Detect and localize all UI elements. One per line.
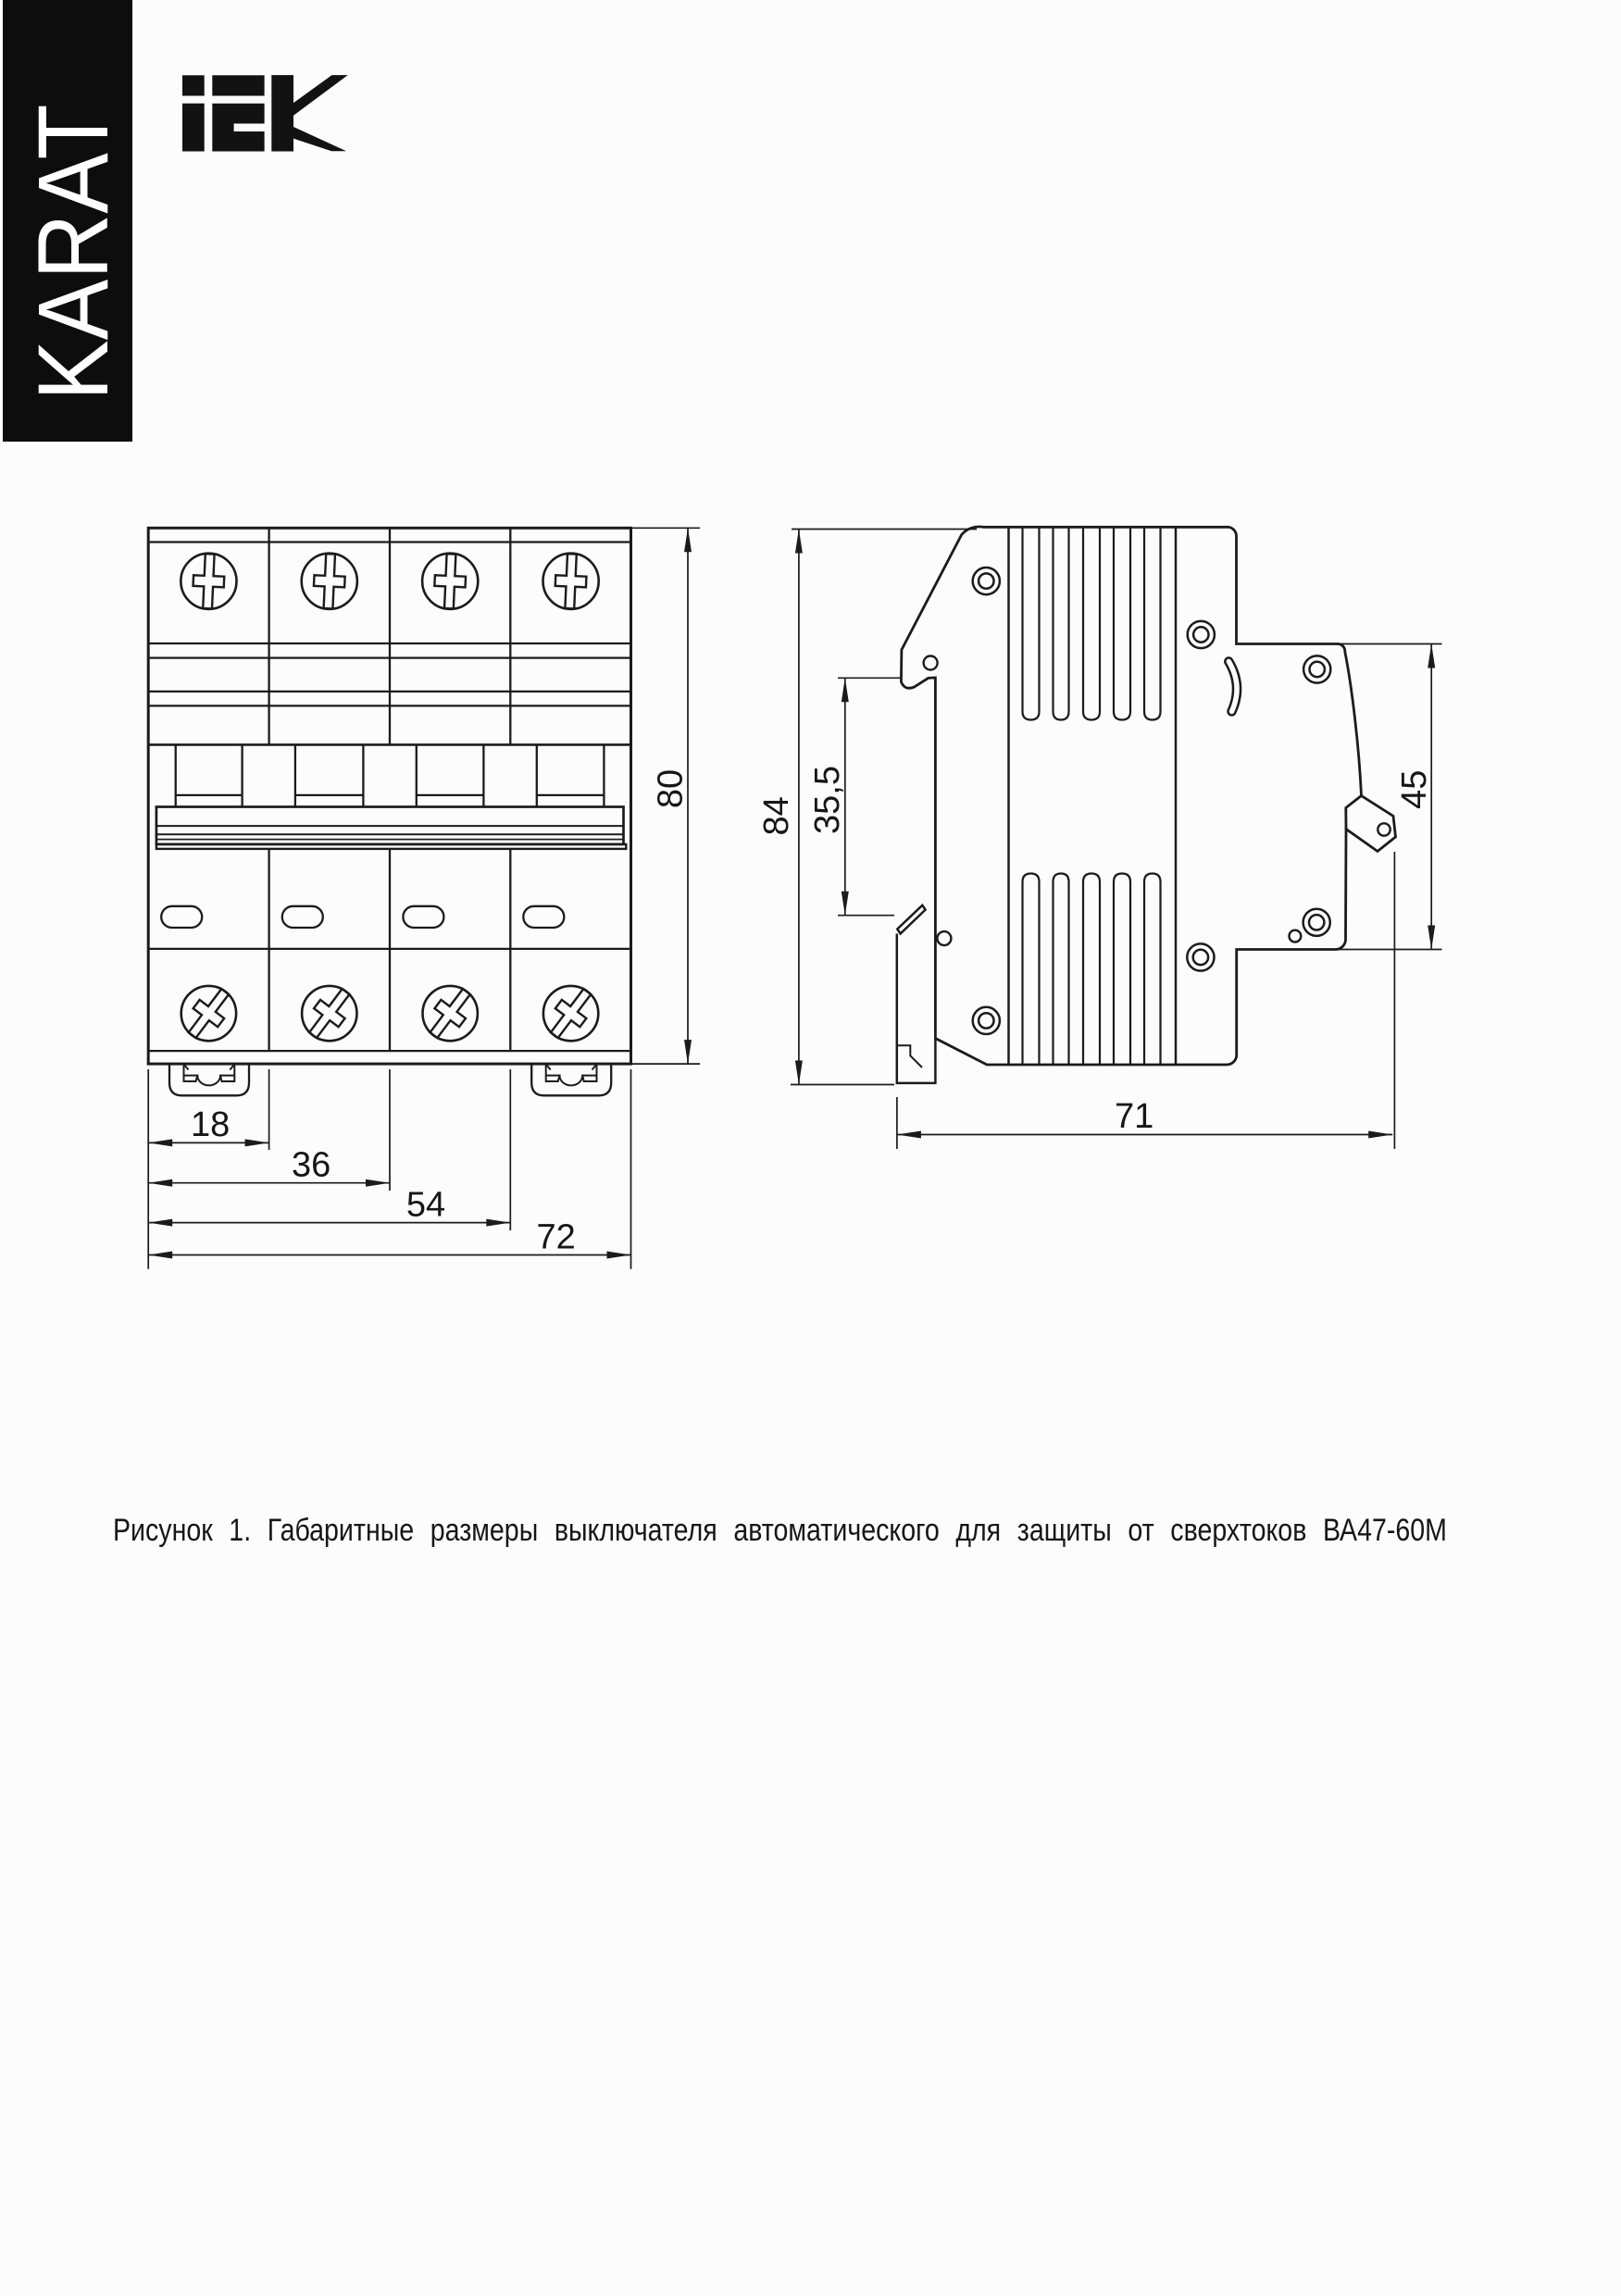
svg-text:35,5: 35,5 bbox=[808, 766, 847, 834]
svg-text:71: 71 bbox=[1115, 1097, 1153, 1136]
svg-text:45: 45 bbox=[1395, 770, 1434, 809]
svg-text:72: 72 bbox=[537, 1218, 576, 1257]
svg-text:80: 80 bbox=[652, 769, 691, 808]
svg-text:36: 36 bbox=[292, 1146, 330, 1185]
svg-text:84: 84 bbox=[757, 796, 796, 835]
svg-text:54: 54 bbox=[406, 1186, 445, 1225]
svg-text:18: 18 bbox=[191, 1105, 230, 1144]
